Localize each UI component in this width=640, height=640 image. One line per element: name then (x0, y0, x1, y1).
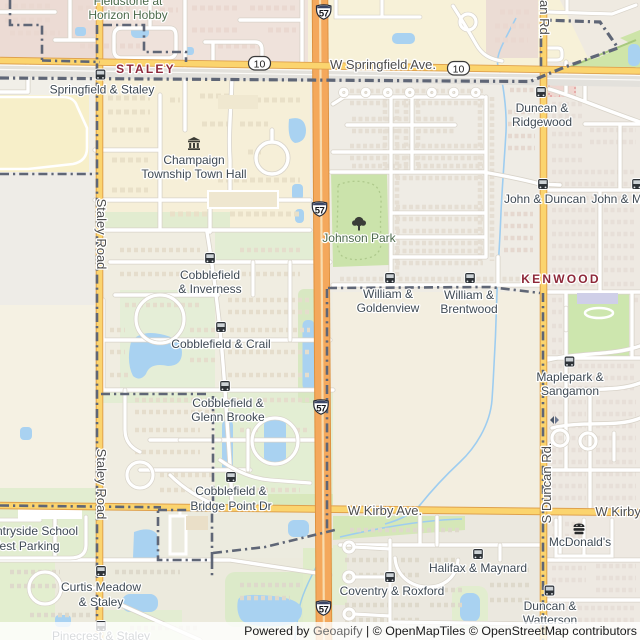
svg-text:Cobblefield: Cobblefield (180, 268, 240, 282)
svg-text:Glenn Brooke: Glenn Brooke (191, 410, 265, 424)
svg-text:Champaign: Champaign (163, 153, 224, 167)
svg-text:Cobblefield &: Cobblefield & (192, 396, 263, 410)
svg-text:West Parking: West Parking (0, 539, 60, 553)
svg-text:10: 10 (254, 58, 266, 70)
svg-text:57: 57 (319, 8, 329, 19)
svg-text:Township Town Hall: Township Town Hall (141, 167, 246, 181)
svg-text:Goldenview: Goldenview (357, 301, 420, 315)
svg-text:KENWOOD: KENWOOD (521, 272, 600, 286)
svg-text:Sangamon: Sangamon (541, 384, 599, 398)
svg-text:STALEY: STALEY (116, 62, 176, 76)
svg-text:Duncan &: Duncan & (524, 599, 577, 613)
svg-text:Staley Road: Staley Road (94, 199, 109, 270)
svg-text:57: 57 (316, 403, 326, 414)
svg-text:Maplepark &: Maplepark & (536, 370, 603, 384)
svg-text:Johnson Park: Johnson Park (322, 231, 396, 245)
svg-text:John & Duncan: John & Duncan (504, 192, 586, 206)
svg-text:W Kirby Ave.: W Kirby Ave. (348, 503, 422, 518)
svg-text:W Kirby Av: W Kirby Av (595, 504, 640, 519)
svg-text:Cobblefield &: Cobblefield & (195, 484, 266, 498)
svg-text:Bridge Point Dr: Bridge Point Dr (190, 499, 271, 513)
svg-text:Coventry & Roxford: Coventry & Roxford (340, 584, 445, 598)
svg-text:10: 10 (453, 63, 465, 75)
svg-text:W Springfield Ave.: W Springfield Ave. (330, 57, 436, 72)
svg-text:57: 57 (319, 604, 329, 615)
svg-text:Curtis Meadow: Curtis Meadow (61, 580, 141, 594)
svg-text:Springfield & Staley: Springfield & Staley (50, 83, 155, 97)
svg-text:William &: William & (444, 288, 494, 302)
svg-text:& Staley: & Staley (79, 595, 124, 609)
svg-text:William &: William & (363, 287, 413, 301)
svg-text:Duncan &: Duncan & (516, 101, 569, 115)
svg-text:Halifax & Maynard: Halifax & Maynard (429, 561, 527, 575)
svg-text:McDonald's: McDonald's (549, 535, 611, 549)
svg-text:S Duncan Rd.: S Duncan Rd. (539, 443, 554, 524)
svg-text:Horizon Hobby: Horizon Hobby (88, 8, 167, 22)
svg-text:Brentwood: Brentwood (440, 302, 497, 316)
svg-text:Staley Road: Staley Road (94, 449, 109, 520)
svg-text:Cobblefield & Crail: Cobblefield & Crail (171, 337, 270, 351)
svg-text:Countryside School: Countryside School (0, 524, 78, 538)
svg-text:Duncan Rd.: Duncan Rd. (537, 0, 552, 38)
svg-text:Ridgewood: Ridgewood (512, 115, 572, 129)
svg-text:John & Mi: John & Mi (591, 192, 640, 206)
svg-text:57: 57 (315, 205, 325, 216)
svg-text:& Inverness: & Inverness (178, 282, 241, 296)
svg-text:Fieldstone at: Fieldstone at (94, 0, 163, 8)
